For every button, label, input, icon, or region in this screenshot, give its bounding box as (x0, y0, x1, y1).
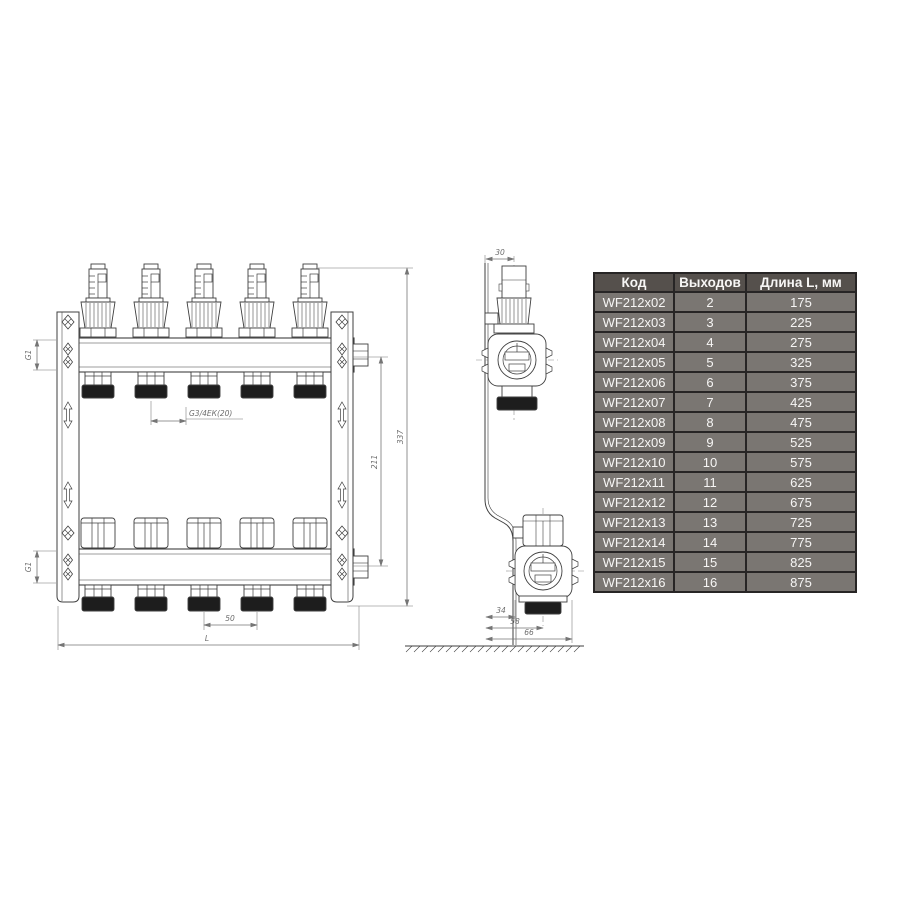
cell-code: WF212x06 (594, 372, 674, 392)
cell-code: WF212x09 (594, 432, 674, 452)
table-row: WF212x044275 (594, 332, 856, 352)
end-plug-bottom (353, 556, 368, 578)
dim-label-L: L (205, 634, 209, 643)
table-row: WF212x1313725 (594, 512, 856, 532)
outlet-top-4 (241, 372, 273, 398)
dim-label-50: 50 (225, 614, 235, 623)
cell-outputs: 12 (674, 492, 746, 512)
cell-length: 825 (746, 552, 856, 572)
table-row: WF212x066375 (594, 372, 856, 392)
cell-outputs: 4 (674, 332, 746, 352)
table-row: WF212x033225 (594, 312, 856, 332)
cell-length: 425 (746, 392, 856, 412)
table-row: WF212x1111625 (594, 472, 856, 492)
dim-label-337: 337 (396, 430, 405, 445)
cell-outputs: 7 (674, 392, 746, 412)
dim-label-58: 58 (510, 617, 520, 626)
cell-code: WF212x05 (594, 352, 674, 372)
cell-outputs: 6 (674, 372, 746, 392)
dim-label-outlet-thread: G3/4ЕК(20) (189, 409, 232, 418)
product-spec-table: Код Выходов Длина L, мм WF212x022175WF21… (593, 272, 857, 593)
cell-code: WF212x14 (594, 532, 674, 552)
side-top-section (482, 266, 552, 410)
cell-length: 625 (746, 472, 856, 492)
outlet-top-2 (135, 372, 167, 398)
dim-label-211: 211 (370, 455, 379, 469)
cell-length: 275 (746, 332, 856, 352)
cell-length: 875 (746, 572, 856, 592)
manifold-side-view: 30 34 58 66 (405, 248, 584, 652)
technical-drawing: G1 G1 G3/4ЕК(20) 50 L 211 337 (0, 0, 590, 900)
outlet-top-1 (82, 372, 114, 398)
cell-code: WF212x13 (594, 512, 674, 532)
table-row: WF212x1414775 (594, 532, 856, 552)
dim-label-g1-top: G1 (24, 350, 33, 361)
table-row: WF212x1010575 (594, 452, 856, 472)
cell-outputs: 16 (674, 572, 746, 592)
flow-meter-5 (292, 264, 328, 337)
cell-outputs: 14 (674, 532, 746, 552)
flow-meter-4 (239, 264, 275, 337)
cell-length: 225 (746, 312, 856, 332)
cell-code: WF212x04 (594, 332, 674, 352)
cell-length: 475 (746, 412, 856, 432)
table-row: WF212x1616875 (594, 572, 856, 592)
table-row: WF212x1515825 (594, 552, 856, 572)
table-row: WF212x088475 (594, 412, 856, 432)
cell-length: 175 (746, 292, 856, 312)
cell-code: WF212x07 (594, 392, 674, 412)
cell-length: 375 (746, 372, 856, 392)
outlet-bottom-4 (241, 585, 273, 611)
cell-code: WF212x03 (594, 312, 674, 332)
outlet-top-3 (188, 372, 220, 398)
cell-length: 675 (746, 492, 856, 512)
cell-code: WF212x08 (594, 412, 674, 432)
valve-cap-3 (187, 518, 221, 548)
page: G1 G1 G3/4ЕК(20) 50 L 211 337 (0, 0, 900, 900)
cell-outputs: 10 (674, 452, 746, 472)
cell-length: 525 (746, 432, 856, 452)
dim-label-g1-bottom: G1 (24, 562, 33, 573)
cell-length: 575 (746, 452, 856, 472)
cell-code: WF212x12 (594, 492, 674, 512)
table-row: WF212x022175 (594, 292, 856, 312)
outlet-top-5 (294, 372, 326, 398)
side-bottom-section (509, 515, 578, 614)
cell-code: WF212x02 (594, 292, 674, 312)
cell-outputs: 15 (674, 552, 746, 572)
cell-code: WF212x15 (594, 552, 674, 572)
dim-label-66: 66 (524, 628, 534, 637)
cell-outputs: 2 (674, 292, 746, 312)
cell-length: 725 (746, 512, 856, 532)
cell-code: WF212x10 (594, 452, 674, 472)
ground-line (405, 646, 584, 652)
end-plug-top (353, 344, 368, 366)
cell-outputs: 9 (674, 432, 746, 452)
flow-meter-3 (186, 264, 222, 337)
col-header-outputs: Выходов (674, 273, 746, 292)
table-row: WF212x1212675 (594, 492, 856, 512)
valve-cap-5 (293, 518, 327, 548)
valve-cap-4 (240, 518, 274, 548)
flow-meter-2 (133, 264, 169, 337)
cell-outputs: 3 (674, 312, 746, 332)
cell-outputs: 13 (674, 512, 746, 532)
table-row: WF212x099525 (594, 432, 856, 452)
col-header-length: Длина L, мм (746, 273, 856, 292)
cell-length: 325 (746, 352, 856, 372)
table-header-row: Код Выходов Длина L, мм (594, 273, 856, 292)
cell-outputs: 8 (674, 412, 746, 432)
cell-code: WF212x11 (594, 472, 674, 492)
table-row: WF212x055325 (594, 352, 856, 372)
flow-meter-1 (80, 264, 116, 337)
outlet-bottom-2 (135, 585, 167, 611)
col-header-code: Код (594, 273, 674, 292)
outlet-bottom-1 (82, 585, 114, 611)
table-row: WF212x077425 (594, 392, 856, 412)
cell-outputs: 11 (674, 472, 746, 492)
outlet-bottom-5 (294, 585, 326, 611)
outlet-bottom-3 (188, 585, 220, 611)
valve-cap-2 (134, 518, 168, 548)
dim-label-34: 34 (496, 606, 506, 615)
dim-label-30: 30 (495, 248, 505, 257)
cell-outputs: 5 (674, 352, 746, 372)
manifold-front-view: G1 G1 G3/4ЕК(20) 50 L 211 337 (24, 264, 413, 650)
valve-cap-1 (81, 518, 115, 548)
cell-length: 775 (746, 532, 856, 552)
cell-code: WF212x16 (594, 572, 674, 592)
